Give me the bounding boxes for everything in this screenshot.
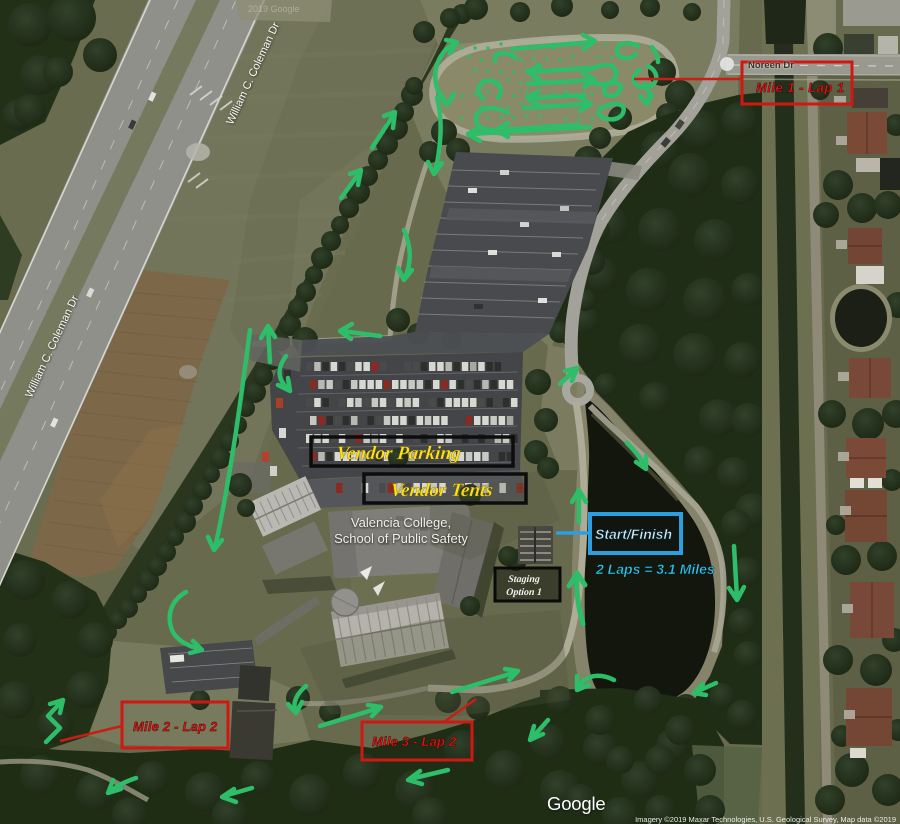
svg-text:2 Laps = 3.1 Miles: 2 Laps = 3.1 Miles [595, 561, 715, 577]
svg-text:Staging: Staging [508, 574, 540, 585]
svg-text:Noreen Dr: Noreen Dr [748, 60, 794, 71]
svg-text:School of Public Safety: School of Public Safety [334, 531, 468, 546]
svg-text:Valencia College,: Valencia College, [351, 515, 451, 530]
svg-text:2019 Google: 2019 Google [248, 4, 300, 14]
svg-text:Mile 1 - Lap 1: Mile 1 - Lap 1 [756, 80, 845, 95]
svg-text:Start/Finish: Start/Finish [595, 526, 672, 542]
svg-text:Vendor Tents: Vendor Tents [389, 480, 493, 501]
svg-text:Mile 2 - Lap 2: Mile 2 - Lap 2 [133, 719, 218, 734]
svg-text:Google: Google [547, 793, 605, 814]
svg-text:Vendor Parking: Vendor Parking [335, 443, 462, 464]
svg-text:Imagery ©2019 Maxar Technologi: Imagery ©2019 Maxar Technologies, U.S. G… [635, 815, 896, 824]
svg-text:Option 1: Option 1 [506, 587, 543, 598]
svg-text:Mile 3 - Lap 2: Mile 3 - Lap 2 [372, 734, 457, 749]
